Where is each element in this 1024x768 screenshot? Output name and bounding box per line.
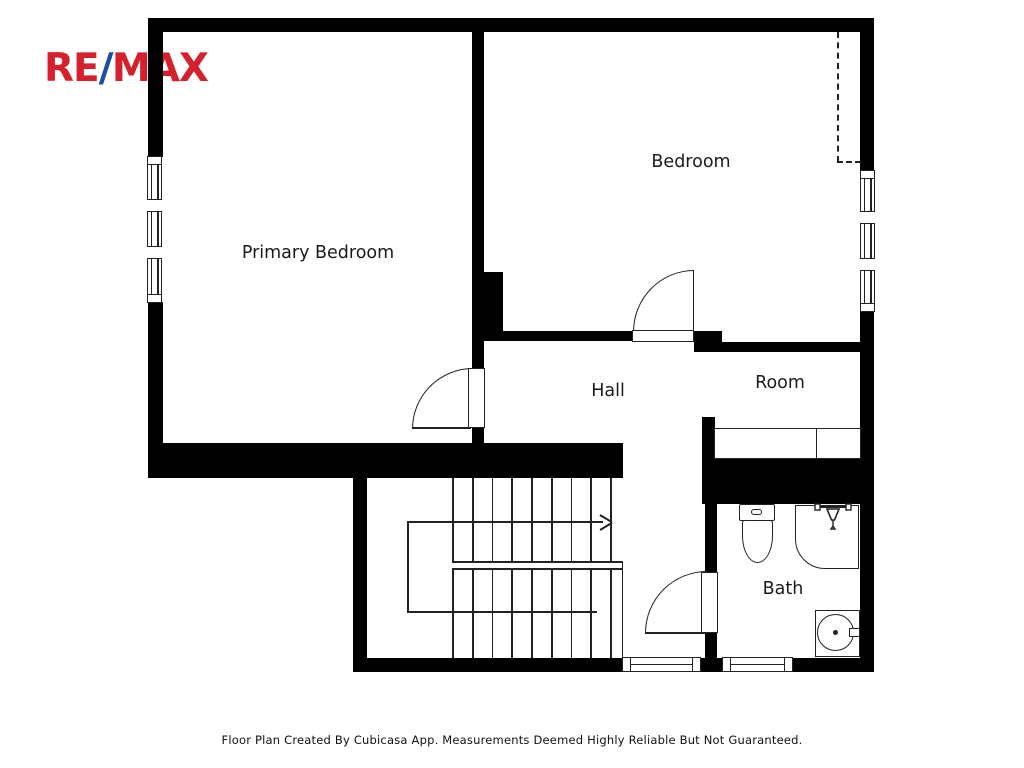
toilet-icon <box>739 504 775 521</box>
room-counter-right <box>816 428 861 459</box>
window-cap <box>861 303 874 304</box>
stair-tread-line <box>472 478 474 562</box>
shower-head-icon <box>812 502 854 530</box>
stairs-walkline-upper <box>407 521 603 523</box>
window-cap <box>730 658 731 671</box>
window-bottom-bath <box>722 657 793 672</box>
primary-door-leaf <box>412 427 471 429</box>
stair-tread-line <box>511 478 513 562</box>
wall-bottom-left <box>353 658 622 672</box>
wall-stairs-left <box>353 478 367 672</box>
stair-tread-line <box>511 570 513 658</box>
toilet-flush-button <box>751 509 762 515</box>
window-mullion <box>860 211 875 224</box>
stair-tread-line <box>590 478 592 562</box>
stair-tread-line <box>452 570 454 658</box>
room-label-room: Room <box>755 373 805 393</box>
window-cap <box>784 658 785 671</box>
primary-door-jamb <box>468 368 485 428</box>
wall-hall-top <box>484 331 634 341</box>
room-label-primary-bedroom: Primary Bedroom <box>242 243 394 263</box>
stairs-walkline-lower <box>407 611 597 613</box>
wall-room-bath-band <box>702 458 873 504</box>
bedroom-door-leaf <box>693 270 695 331</box>
window-right <box>860 170 875 312</box>
window-mullion <box>147 246 162 259</box>
closet-dashed-line-vertical <box>837 32 839 162</box>
wall-bath-left-stub <box>705 633 717 658</box>
window-cap <box>148 294 161 295</box>
window-glass-line <box>151 164 152 295</box>
stairs-flight-divider-1 <box>452 561 623 563</box>
sink-drain <box>833 630 838 635</box>
sink-tap-icon <box>849 628 860 637</box>
bedroom-door-arc <box>633 270 694 332</box>
stair-tread-line <box>590 570 592 658</box>
bath-door-leaf <box>645 632 707 634</box>
wall-divider-notch <box>484 272 503 332</box>
toilet-bowl-icon <box>742 520 773 563</box>
stairs-right-edge <box>622 562 624 658</box>
bath-door-arc <box>645 571 707 633</box>
wall-right-upper <box>860 18 874 171</box>
window-cap <box>861 178 874 179</box>
footer-disclaimer: Floor Plan Created By Cubicasa App. Meas… <box>0 733 1024 747</box>
wall-bottom-right <box>793 658 873 672</box>
floor-plan: Primary Bedroom Bedroom Hall Room Bath <box>0 0 1024 768</box>
stairs-flight-divider-2 <box>452 568 623 570</box>
stair-tread-line <box>492 570 494 658</box>
window-mullion <box>147 199 162 212</box>
wall-primary-bottom <box>148 443 623 478</box>
stair-tread-line <box>492 478 494 562</box>
window-cap <box>630 658 631 671</box>
window-glass-line <box>730 664 785 665</box>
stairs-walkline-vertical <box>407 521 409 612</box>
floor-plan-page: RE/MAX <box>0 0 1024 768</box>
window-left <box>147 156 162 303</box>
window-glass-line <box>870 178 871 304</box>
wall-room-top <box>716 342 860 352</box>
window-mullion <box>860 258 875 271</box>
window-cap <box>148 164 161 165</box>
wall-bottom-middle <box>700 658 722 672</box>
window-glass-line <box>630 664 693 665</box>
wall-left-upper <box>148 18 163 157</box>
stair-tread-line <box>551 478 553 562</box>
window-bottom-hall <box>622 657 701 672</box>
wall-top <box>148 18 874 32</box>
stair-tread-line <box>472 570 474 658</box>
stair-tread-line <box>452 478 454 562</box>
room-counter-left <box>714 428 817 459</box>
stair-tread-line <box>571 478 573 562</box>
stair-tread-line <box>531 570 533 658</box>
closet-dashed-line-horizontal <box>837 161 861 163</box>
room-label-hall: Hall <box>591 381 625 401</box>
room-label-bath: Bath <box>763 579 804 599</box>
stair-tread-line <box>571 570 573 658</box>
window-cap <box>692 658 693 671</box>
room-label-bedroom: Bedroom <box>651 152 730 172</box>
wall-bath-left-upper <box>705 504 717 573</box>
stair-tread-line <box>610 570 612 658</box>
bedroom-door-jamb <box>632 330 694 342</box>
primary-door-arc <box>412 368 473 429</box>
window-glass-line <box>864 178 865 304</box>
bath-door-jamb <box>701 572 718 633</box>
stair-tread-line <box>551 570 553 658</box>
stair-tread-line <box>531 478 533 562</box>
window-glass-line <box>157 164 158 295</box>
